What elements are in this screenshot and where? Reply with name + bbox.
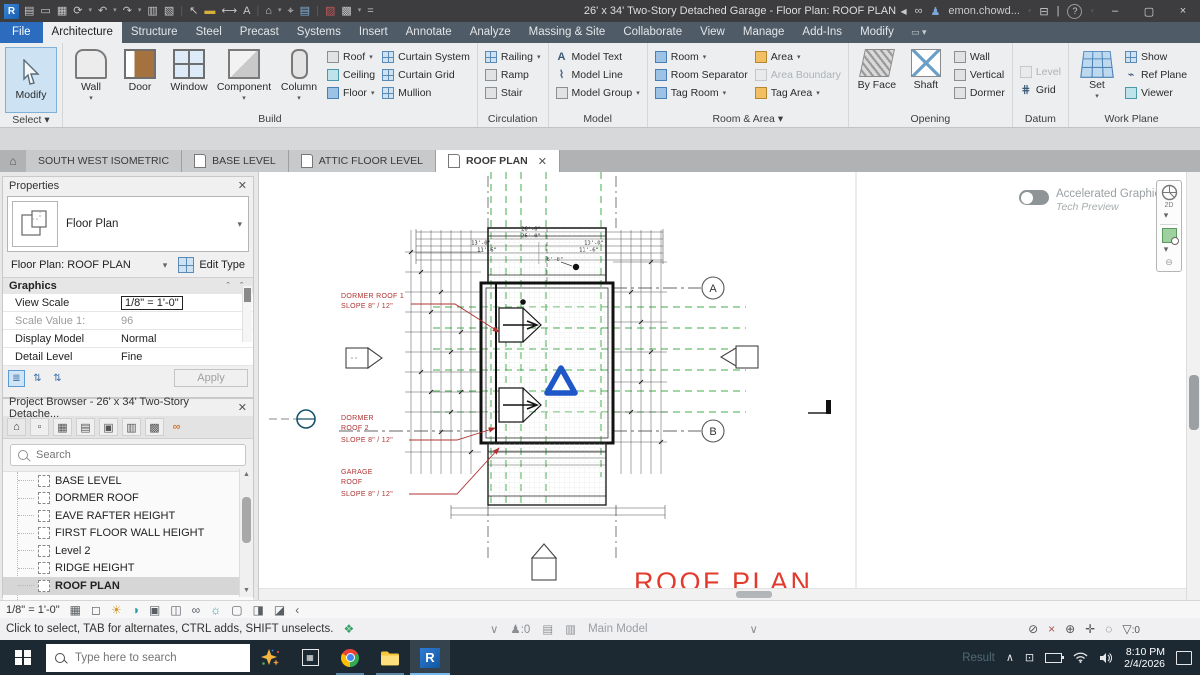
edit-type-icon	[178, 257, 194, 273]
start-button[interactable]	[0, 640, 46, 675]
shadows-icon[interactable]: ◑	[132, 601, 139, 619]
svg-text:SLOPE 8" / 12": SLOPE 8" / 12"	[341, 303, 393, 310]
panel-model: AModel Text ⌇Model Line Model Group▾ Mod…	[549, 43, 648, 127]
area-boundary-icon	[755, 69, 767, 81]
folder-icon	[380, 650, 400, 666]
aligned-dimension-icon[interactable]: ⟷	[221, 0, 237, 22]
browser-item-level-2[interactable]: Level 2	[3, 542, 253, 560]
component-icon	[228, 49, 260, 79]
browser-sheets-icon[interactable]: ▣	[99, 418, 118, 436]
show-work-plane-icon	[1125, 51, 1137, 63]
panel-caption-opening[interactable]: Opening	[849, 112, 1012, 127]
wall-opening-button[interactable]: Wall	[952, 49, 1007, 65]
tab-structure[interactable]: Structure	[122, 22, 187, 43]
sort-descending-icon[interactable]: ⇅	[50, 371, 65, 386]
svg-text:SLOPE 8" / 12": SLOPE 8" / 12"	[341, 437, 393, 444]
scroll-thumb[interactable]	[242, 497, 251, 543]
wall-opening-icon	[954, 51, 966, 63]
text-icon[interactable]: A	[243, 0, 250, 22]
stair-icon	[485, 87, 497, 99]
close-view-tab-icon[interactable]: ✕	[538, 155, 547, 168]
scroll-thumb[interactable]	[1189, 375, 1199, 430]
detail-level-value[interactable]: Fine	[121, 351, 253, 363]
browser-views-icon[interactable]: ▦	[53, 418, 72, 436]
new-doc-icon[interactable]: ▤	[24, 0, 34, 22]
floor-plan-item-icon	[38, 527, 50, 539]
ref-plane-button[interactable]: ⌁Ref Plane	[1123, 67, 1189, 83]
property-row[interactable]: View Scale1/8" = 1'-0"	[3, 294, 253, 312]
floor-plan-item-icon	[38, 562, 50, 574]
shaft-icon	[911, 49, 941, 77]
floor-plan-item-icon	[38, 475, 50, 487]
modify-button[interactable]: Modify	[5, 47, 57, 113]
battery-icon[interactable]	[1045, 653, 1062, 663]
view-control-bar: 1/8" = 1'-0" ▦ ◻ ☀ ◑ ▣ ◫ ∞ ☼ ▢ ◨ ◪ ‹	[0, 600, 1200, 619]
browser-groups-icon[interactable]: ▩	[145, 418, 164, 436]
view-tab-southwest-isometric[interactable]: SOUTH WEST ISOMETRIC	[26, 150, 182, 172]
browser-item-base-level[interactable]: BASE LEVEL	[3, 472, 253, 490]
speaker-icon[interactable]	[1099, 652, 1113, 664]
thin-lines-icon[interactable]: ▤	[300, 0, 310, 22]
modify-button-label: Modify	[16, 89, 47, 101]
tab-systems[interactable]: Systems	[288, 22, 350, 43]
panel-select: Modify Select ▾	[0, 43, 63, 127]
panel-caption-model[interactable]: Model	[549, 112, 647, 127]
window-button[interactable]: Window	[166, 45, 212, 112]
view-tab-base-level[interactable]: BASE LEVEL	[182, 150, 289, 172]
column-button[interactable]: Column▾	[276, 45, 322, 112]
panel-circulation: Railing▾ Ramp Stair Circulation	[478, 43, 549, 127]
close-inactive-icon[interactable]: ▨	[325, 0, 335, 22]
ceiling-button[interactable]: Ceiling	[325, 67, 377, 83]
crop-view-icon[interactable]: ▣	[149, 601, 160, 619]
user-avatar-icon: ♟	[930, 5, 940, 18]
transfer-icon[interactable]: ▧	[164, 0, 174, 22]
save-icon[interactable]: ▦	[57, 0, 67, 22]
close-project-browser-icon[interactable]: ✕	[238, 401, 247, 414]
curtain-system-icon	[382, 51, 394, 63]
open-icon[interactable]: ▭	[40, 0, 50, 22]
curtain-grid-button[interactable]: Curtain Grid	[380, 67, 472, 83]
instance-name[interactable]: Floor Plan: ROOF PLAN	[7, 259, 158, 271]
search-icon	[55, 653, 65, 663]
browser-scrollbar[interactable]: ▲▼	[239, 469, 253, 597]
home-icon[interactable]: ⌂	[265, 0, 272, 22]
by-face-button[interactable]: By Face	[854, 45, 900, 112]
switch-windows-dropdown-icon[interactable]: ▾	[358, 0, 362, 22]
taskbar-search-input[interactable]	[73, 651, 217, 665]
mullion-icon	[382, 87, 394, 99]
project-browser-title: Project Browser - 26' x 34' Two-Story De…	[9, 396, 238, 420]
drag-elements-icon[interactable]: ✛	[1085, 622, 1095, 636]
matchline-symbol[interactable]	[808, 400, 831, 414]
ribbon-tab-bar: File Architecture Structure Steel Precas…	[0, 22, 1200, 43]
home-view-icon[interactable]: ⌂	[0, 150, 26, 172]
browser-item-first-floor-wall-height[interactable]: FIRST FLOOR WALL HEIGHT	[3, 525, 253, 543]
revit-app-icon[interactable]: R	[4, 4, 19, 19]
qat-separator: |	[256, 0, 259, 22]
svg-text:SLOPE 8" / 12": SLOPE 8" / 12"	[341, 491, 393, 498]
account-name[interactable]: emon.chowd...	[948, 5, 1020, 17]
print-icon[interactable]: ▥	[147, 0, 157, 22]
system-tray: Result ∧ ⊡ 8:10 PM 2/4/2026	[962, 646, 1200, 670]
floor-plan-thumbnail-icon	[18, 207, 52, 241]
select-by-face-icon[interactable]: ◌	[1105, 622, 1112, 636]
edit-type-button[interactable]: Edit Type	[199, 259, 249, 271]
spot-marker[interactable]	[520, 299, 526, 305]
area-boundary-button: Area Boundary	[753, 67, 843, 83]
clock-time: 8:10 PM	[1124, 646, 1165, 658]
edit-in-place-icon[interactable]: ×	[1048, 622, 1055, 636]
model-line-button[interactable]: ⌇Model Line	[554, 67, 642, 83]
door-icon	[124, 49, 156, 79]
tab-massing-site[interactable]: Massing & Site	[520, 22, 615, 43]
left-dock: Properties✕ Floor Plan ▾ Floor Plan: ROO…	[0, 172, 258, 600]
tablet-mode-icon[interactable]: ⊡	[1025, 651, 1034, 664]
railing-icon	[485, 51, 497, 63]
zoom-icon[interactable]	[1162, 228, 1177, 243]
drawing-area[interactable]: A B	[258, 172, 1187, 600]
file-explorer-button[interactable]	[370, 640, 410, 675]
stair-button[interactable]: Stair	[483, 85, 543, 101]
taskbar-search-box[interactable]	[46, 644, 250, 672]
browser-search-box[interactable]	[10, 444, 246, 466]
display-model-value[interactable]: Normal	[121, 333, 253, 345]
canvas-vertical-scrollbar[interactable]	[1186, 172, 1200, 600]
dormer-roof-1-label: DORMER ROOF 1	[341, 293, 404, 300]
view-tab-roof-plan[interactable]: ROOF PLAN✕	[436, 150, 560, 172]
worksharing-status-icon[interactable]: ❖	[343, 622, 354, 636]
scroll-down-icon[interactable]: ▼	[243, 585, 250, 597]
dormer-roof-2-label: DORMER	[341, 415, 374, 422]
measure-icon[interactable]: ▬	[204, 0, 215, 22]
level-button: Level	[1018, 64, 1063, 80]
design-options-dropdown-icon[interactable]: ∨	[750, 622, 758, 636]
type-selector-dropdown-icon[interactable]: ▾	[237, 219, 248, 230]
sync-icon[interactable]: ⟳	[73, 0, 82, 22]
model-text-icon: A	[556, 51, 568, 63]
close-properties-icon[interactable]: ✕	[238, 179, 247, 192]
room-button[interactable]: Room▾	[653, 49, 750, 65]
tab-steel[interactable]: Steel	[187, 22, 231, 43]
task-view-icon: ▦	[302, 649, 319, 666]
undo-icon[interactable]: ↶	[98, 0, 107, 22]
home-dropdown-icon[interactable]: ▾	[278, 0, 282, 22]
tech-preview-label: Tech Preview	[1056, 201, 1166, 213]
redo-dropdown-icon[interactable]: ▾	[138, 0, 142, 22]
view-tab-bar: ⌂ SOUTH WEST ISOMETRIC BASE LEVEL ATTIC …	[0, 150, 1200, 172]
panel-caption-build[interactable]: Build	[63, 112, 477, 127]
tab-view[interactable]: View	[691, 22, 734, 43]
wheel-dropdown-icon[interactable]: ▾	[1164, 210, 1175, 221]
panel-datum: Level ⋕Grid Datum	[1013, 43, 1069, 127]
apply-button[interactable]: Apply	[174, 369, 248, 387]
properties-scrollbar[interactable]	[242, 286, 252, 342]
windows-logo-icon	[15, 650, 31, 666]
qat-separator: |	[316, 0, 319, 22]
design-option-icon[interactable]: ▥	[565, 622, 576, 636]
scroll-up-icon[interactable]: ▲	[243, 469, 250, 481]
ceiling-icon	[327, 69, 339, 81]
worksharing-display-icon[interactable]: ▢	[231, 601, 242, 619]
navbar-collapse-icon[interactable]: ⊖	[1165, 257, 1173, 268]
tag-area-button[interactable]: Tag Area▾	[753, 85, 843, 101]
shaft-button[interactable]: Shaft	[903, 45, 949, 112]
panel-caption-work-plane[interactable]: Work Plane	[1069, 112, 1194, 127]
roof-annotations: DORMER ROOF 1 SLOPE 8" / 12" DORMER ROOF…	[341, 293, 404, 498]
windows-taskbar: ▦ R Result ∧ ⊡ 8:10 PM 2/4/2026	[0, 640, 1200, 675]
canvas-horizontal-scrollbar[interactable]	[259, 588, 1187, 600]
left-dimension-lines	[405, 230, 481, 474]
navigation-bar: 2D ▾ ▾ ⊖	[1156, 180, 1182, 272]
view-tab-attic-floor-level[interactable]: ATTIC FLOOR LEVEL	[289, 150, 436, 172]
design-options-select[interactable]: Main Model	[588, 623, 647, 635]
qat-separator: |	[180, 0, 183, 22]
quick-access-toolbar: ▤ ▭ ▦ ⟳▾ ↶▾ ↷▾ ▥ ▧ | ↖ ▬ ⟷ A | ⌂▾ ⌖ ▤ | …	[24, 0, 374, 22]
restore-button[interactable]: ▢	[1136, 5, 1162, 18]
floor-button[interactable]: Floor▾	[325, 85, 377, 101]
browser-links-icon[interactable]: ∞	[168, 419, 185, 435]
browser-search-input[interactable]	[34, 448, 208, 462]
browser-item-roof-plan[interactable]: ROOF PLAN	[3, 577, 253, 595]
reveal-hidden-elements-icon[interactable]: ☼	[210, 601, 221, 619]
undo-dropdown-icon[interactable]: ▾	[113, 0, 117, 22]
view-scale-control[interactable]: 1/8" = 1'-0"	[6, 604, 60, 616]
grid-bubble-b-label: B	[709, 426, 716, 438]
search-binoculars-icon[interactable]: ∞	[915, 5, 923, 17]
browser-tree: BASE LEVEL DORMER ROOF EAVE RAFTER HEIGH…	[3, 471, 253, 600]
floor-plan-item-icon	[38, 580, 50, 592]
revit-icon: R	[420, 648, 440, 668]
room-separator-button[interactable]: Room Separator	[653, 67, 750, 83]
tab-collaborate[interactable]: Collaborate	[614, 22, 691, 43]
steering-wheel-2d-label: 2D	[1165, 202, 1174, 209]
curtain-grid-icon	[382, 69, 394, 81]
instance-dropdown-icon[interactable]: ▾	[163, 260, 174, 271]
tab-modify[interactable]: Modify	[851, 22, 903, 43]
vcb-collapse-icon[interactable]: ‹	[295, 601, 299, 619]
grid-bubble-a-label: A	[709, 283, 717, 295]
model-group-icon	[556, 87, 568, 99]
editable-only-icon[interactable]: ♟:0	[510, 622, 530, 636]
tag-room-icon	[655, 87, 667, 99]
property-row[interactable]: Detail LevelFine	[3, 348, 253, 366]
wall-button[interactable]: Wall▾	[68, 45, 114, 112]
temporary-hide-isolate-icon[interactable]: ∞	[192, 601, 201, 619]
component-button[interactable]: Component▾	[215, 45, 273, 112]
close-button[interactable]: ×	[1170, 5, 1196, 17]
ramp-icon	[485, 69, 497, 81]
type-name: Floor Plan	[66, 218, 237, 230]
floor-plan-item-icon	[38, 510, 50, 522]
roof-button[interactable]: Roof▾	[325, 49, 377, 65]
model-text-button[interactable]: AModel Text	[554, 49, 642, 65]
sun-path-icon[interactable]: ☀	[111, 601, 122, 619]
set-work-plane-icon	[1080, 51, 1114, 78]
viewer-button[interactable]: Viewer	[1123, 85, 1189, 101]
room-separator-icon	[655, 69, 667, 81]
customize-qat-icon[interactable]: =	[367, 0, 373, 22]
browser-schedules-icon[interactable]: ▤	[76, 418, 95, 436]
curtain-system-button[interactable]: Curtain System	[380, 49, 472, 65]
floor-plan-item-icon	[38, 545, 50, 557]
grid-button[interactable]: ⋕Grid	[1018, 82, 1063, 98]
dormer-opening-icon	[954, 87, 966, 99]
copilot-button[interactable]	[250, 640, 290, 675]
elevation-marker-south[interactable]	[532, 544, 556, 580]
clock-date: 2/4/2026	[1124, 658, 1165, 670]
chrome-icon	[341, 649, 359, 667]
title-bar: R ▤ ▭ ▦ ⟳▾ ↶▾ ↷▾ ▥ ▧ | ↖ ▬ ⟷ A | ⌂▾ ⌖ ▤ …	[0, 0, 1200, 22]
help-dropdown-icon[interactable]: ▾	[1090, 7, 1094, 15]
project-browser: Project Browser - 26' x 34' Two-Story De…	[2, 398, 254, 598]
accelerated-graphics-toggle[interactable]	[1019, 190, 1049, 205]
show-button[interactable]: Show	[1123, 49, 1189, 65]
help-icon[interactable]: ?	[1067, 4, 1082, 19]
model-group-button[interactable]: Model Group▾	[554, 85, 642, 101]
door-button[interactable]: Door	[117, 45, 163, 112]
ramp-button[interactable]: Ramp	[483, 67, 543, 83]
scale-value: 96	[121, 315, 253, 327]
spot-marker[interactable]	[573, 264, 579, 270]
copilot-sparkle-icon	[259, 647, 281, 669]
railing-button[interactable]: Railing▾	[483, 49, 543, 65]
property-row[interactable]: Display ModelNormal	[3, 330, 253, 348]
sort-ascending-icon[interactable]: ⇅	[30, 371, 45, 386]
displaced-elements-icon[interactable]: ◨	[253, 601, 264, 619]
window-icon	[173, 49, 205, 79]
browser-item-dormer-roof[interactable]: DORMER ROOF	[3, 490, 253, 508]
task-view-button[interactable]: ▦	[290, 640, 330, 675]
status-dropdown-icon[interactable]: ∨	[490, 622, 498, 636]
status-bar: Click to select, TAB for alternates, CTR…	[0, 618, 1200, 640]
status-hint: Click to select, TAB for alternates, CTR…	[0, 623, 333, 635]
elevation-marker-west[interactable]	[346, 348, 382, 368]
tab-file[interactable]: File	[0, 22, 43, 43]
search-icon	[18, 450, 28, 460]
options-bar	[0, 128, 1200, 151]
taskbar-clock[interactable]: 8:10 PM 2/4/2026	[1124, 646, 1165, 670]
sync-dropdown-icon[interactable]: ▾	[88, 0, 92, 22]
detail-level-icon[interactable]: ▦	[70, 601, 81, 619]
tab-architecture[interactable]: Architecture	[43, 22, 122, 43]
properties-palette: Properties✕ Floor Plan ▾ Floor Plan: ROO…	[2, 176, 254, 398]
workset-icon[interactable]: ▤	[542, 622, 553, 636]
tab-manage[interactable]: Manage	[734, 22, 794, 43]
vertical-opening-icon	[954, 69, 966, 81]
view-scale-value[interactable]: 1/8" = 1'-0"	[121, 296, 183, 310]
browser-item-eave-rafter-height[interactable]: EAVE RAFTER HEIGHT	[3, 507, 253, 525]
browser-item-ridge-height[interactable]: RIDGE HEIGHT	[3, 560, 253, 578]
by-face-icon	[859, 49, 895, 77]
panel-opening: By Face Shaft Wall Vertical Dormer Openi…	[849, 43, 1013, 127]
floor-icon	[327, 87, 339, 99]
browser-families-icon[interactable]: ▥	[122, 418, 141, 436]
accelerated-graphics-label: Accelerated Graphics	[1056, 188, 1166, 201]
chrome-button[interactable]	[330, 640, 370, 675]
tab-annotate[interactable]: Annotate	[397, 22, 461, 43]
mullion-button[interactable]: Mullion	[380, 85, 472, 101]
panel-build: Wall▾ Door Window Component▾ Column▾ Roo…	[63, 43, 478, 127]
tag-room-button[interactable]: Tag Room▾	[653, 85, 750, 101]
revit-taskbar-button[interactable]: R	[410, 640, 450, 675]
set-button[interactable]: Set▾	[1074, 45, 1120, 112]
level-icon	[1020, 66, 1032, 78]
garage-roof-label: GARAGE	[341, 469, 373, 476]
panel-caption-circulation[interactable]: Circulation	[478, 112, 548, 127]
titlebar-separator: |	[1057, 5, 1060, 17]
property-row: Scale Value 1:96	[3, 312, 253, 330]
accelerated-graphics-control: Accelerated Graphics Tech Preview	[1019, 188, 1166, 213]
svg-text:ROOF: ROOF	[341, 479, 362, 486]
dormer-opening-button[interactable]: Dormer	[952, 85, 1007, 101]
view-doc-icon	[448, 154, 460, 168]
ref-plane-icon: ⌁	[1125, 69, 1137, 81]
show-crop-region-icon[interactable]: ◫	[170, 601, 181, 619]
scroll-thumb[interactable]	[736, 591, 772, 598]
section-icon[interactable]: ⌖	[287, 0, 293, 22]
svg-text:ROOF 2: ROOF 2	[341, 425, 369, 432]
type-thumbnail	[12, 201, 58, 247]
roof-icon	[327, 51, 339, 63]
tray-chevron-icon[interactable]: ∧	[1006, 651, 1014, 664]
exclude-pinned-icon[interactable]: ⊕	[1065, 622, 1075, 636]
view-doc-icon	[194, 154, 206, 168]
modify-cursor-icon[interactable]: ↖	[189, 0, 198, 22]
panel-caption-room-area[interactable]: Room & Area ▾	[648, 112, 848, 127]
panel-caption-datum[interactable]: Datum	[1013, 112, 1068, 127]
browser-home-icon[interactable]: ⌂	[7, 418, 26, 436]
selection-filter-icon[interactable]: ▽:0	[1122, 622, 1140, 636]
minimize-button[interactable]: –	[1102, 5, 1128, 17]
reveal-constraints-icon[interactable]: ◪	[274, 601, 285, 619]
section-marker[interactable]	[269, 410, 315, 428]
tab-addins[interactable]: Add-Ins	[793, 22, 851, 43]
zoom-dropdown-icon[interactable]: ▾	[1164, 244, 1175, 255]
tab-analyze[interactable]: Analyze	[461, 22, 520, 43]
action-center-icon[interactable]	[1176, 651, 1192, 665]
properties-filter-icon[interactable]: ≣	[8, 370, 25, 387]
wifi-icon[interactable]	[1073, 652, 1088, 663]
app-store-icon[interactable]: ⊟	[1039, 5, 1048, 18]
tab-precast[interactable]: Precast	[231, 22, 288, 43]
type-selector[interactable]: Floor Plan ▾	[7, 196, 249, 252]
roof-plan-drawing: A B	[259, 172, 1187, 600]
ribbon-collapse-icon[interactable]: ▭ ▾	[903, 22, 935, 43]
floor-plan-item-icon	[38, 492, 50, 504]
graphics-section-header[interactable]: Graphics	[9, 280, 57, 292]
cursor-arrow-icon	[20, 59, 42, 85]
view-doc-icon	[301, 154, 313, 168]
visual-style-icon[interactable]: ◻	[91, 601, 101, 619]
browser-select-icon[interactable]: ▫	[30, 418, 49, 436]
switch-windows-icon[interactable]: ▩	[341, 0, 351, 22]
redo-icon[interactable]: ↷	[123, 0, 132, 22]
area-icon	[755, 51, 767, 63]
collapse-arrow-icon[interactable]: ◀	[900, 7, 906, 16]
steering-wheel-icon[interactable]	[1161, 184, 1178, 201]
panel-caption-select[interactable]: Select ▾	[0, 113, 62, 128]
grid-icon: ⋕	[1020, 84, 1032, 96]
wall-icon	[75, 49, 107, 79]
exclude-options-icon[interactable]: ⊘	[1028, 622, 1038, 636]
tray-ghost-text: Result	[962, 652, 995, 664]
area-button[interactable]: Area▾	[753, 49, 843, 65]
vertical-opening-button[interactable]: Vertical	[952, 67, 1007, 83]
account-dropdown-icon[interactable]: ▾	[1028, 7, 1032, 15]
panel-work-plane: Set▾ Show ⌁Ref Plane Viewer Work Plane	[1069, 43, 1194, 127]
tab-insert[interactable]: Insert	[350, 22, 397, 43]
